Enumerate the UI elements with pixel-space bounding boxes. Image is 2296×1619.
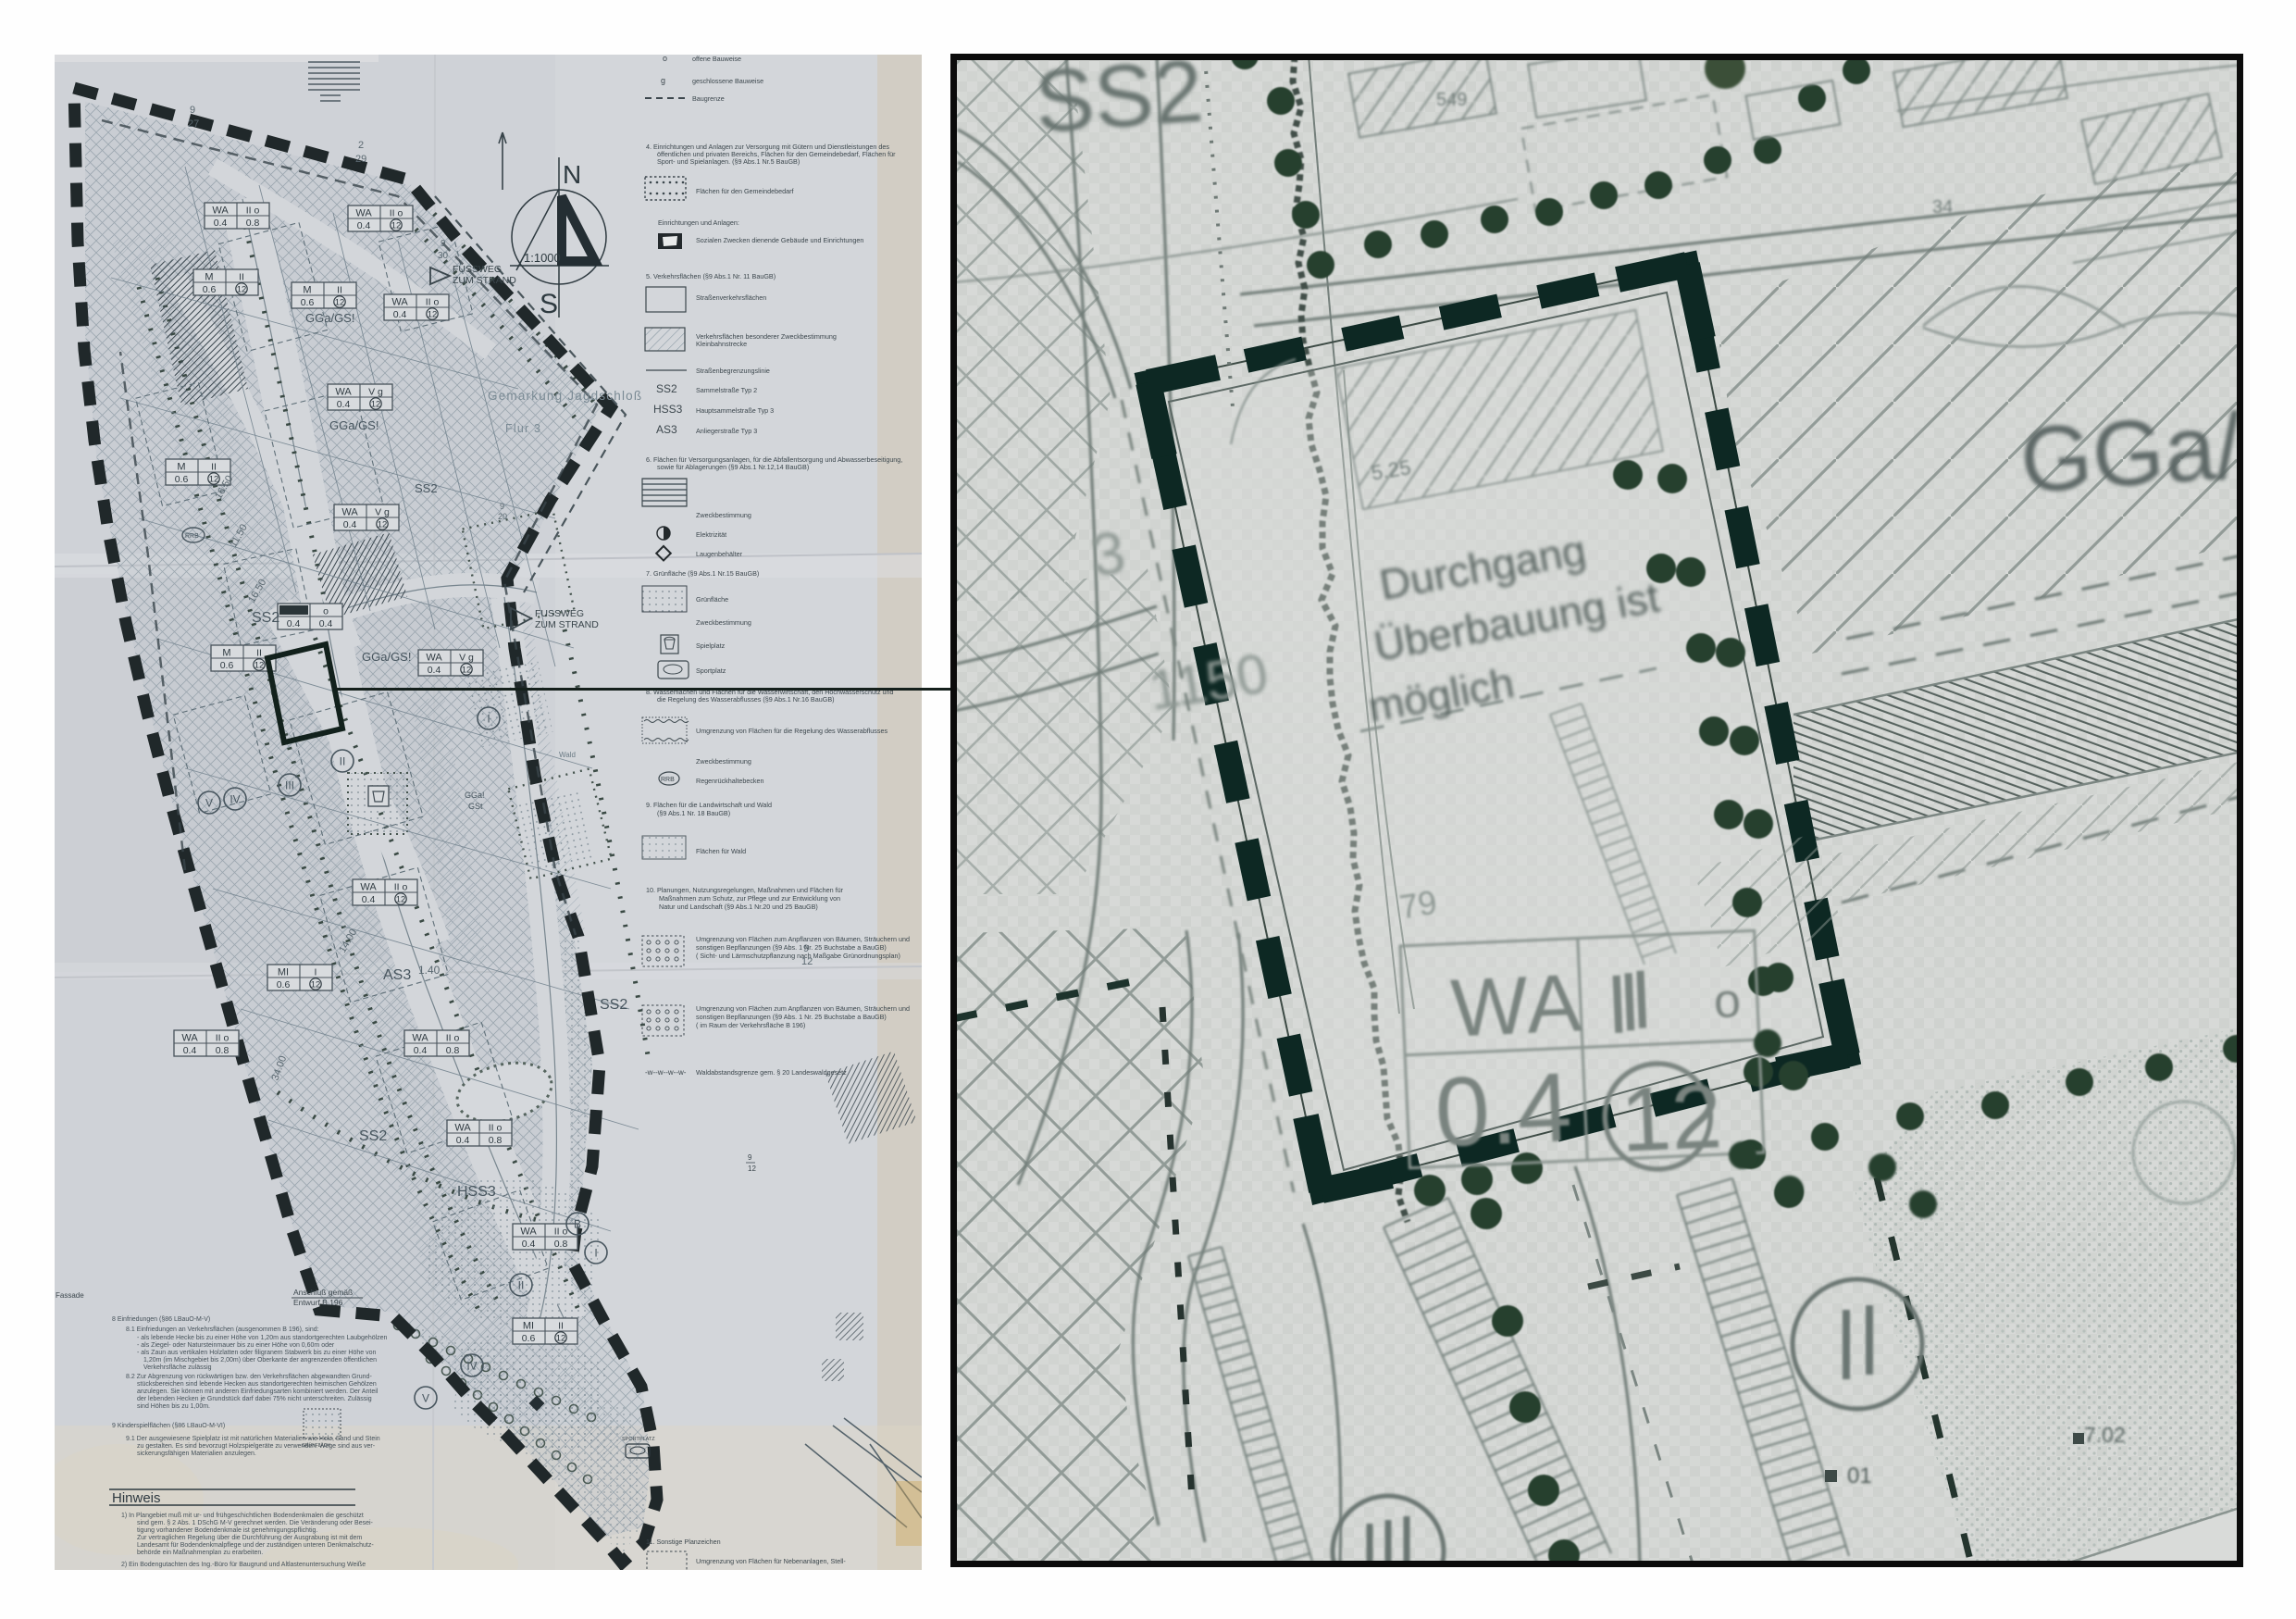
svg-text:Straßenbegrenzungslinie: Straßenbegrenzungslinie: [696, 367, 770, 375]
svg-text:0.6: 0.6: [203, 284, 217, 295]
svg-text:2) Ein Bodengutachten des In: 2) Ein Bodengutachten des Ing.-Büro für …: [121, 1562, 366, 1568]
svg-text:Hinweis: Hinweis: [112, 1490, 161, 1506]
svg-text:WA: WA: [355, 208, 372, 219]
svg-text:Sportplatz: Sportplatz: [696, 666, 726, 675]
svg-text:WA: WA: [520, 1227, 537, 1238]
svg-text:Zur vertraglichen Regelung übe: Zur vertraglichen Regelung über die Durc…: [137, 1535, 362, 1541]
svg-text:Umgrenzung von Flächen zum Anp: Umgrenzung von Flächen zum Anpflanzen vo…: [696, 1004, 910, 1013]
svg-text:8.1 Einfriedungen an Verkehrs: 8.1 Einfriedungen an Verkehrsflächen (au…: [126, 1326, 319, 1333]
svg-text:GSt: GSt: [468, 802, 483, 811]
svg-text:WA: WA: [181, 1033, 198, 1044]
svg-text:WA: WA: [426, 653, 442, 664]
svg-text:12: 12: [311, 980, 321, 990]
svg-text:1) In Plangebiet muß mit ur-: 1) In Plangebiet muß mit ur- und frühges…: [121, 1513, 364, 1519]
svg-text:30: 30: [438, 251, 449, 261]
svg-text:behörde ein Maßnahmenplan zu e: behörde ein Maßnahmenplan zu erarbeiten.: [137, 1550, 263, 1556]
svg-text:Verkehrsfläche zulässig: Verkehrsfläche zulässig: [143, 1364, 212, 1371]
svg-text:Elektrizität: Elektrizität: [696, 530, 726, 539]
svg-text:( im Raum der Verkehrsfläche B: ( im Raum der Verkehrsfläche B 196): [696, 1021, 805, 1029]
svg-text:Flur 3: Flur 3: [505, 422, 541, 435]
svg-text:SS2: SS2: [656, 382, 677, 395]
svg-text:o: o: [1713, 974, 1742, 1028]
svg-text:S: S: [540, 289, 558, 319]
svg-text:WA: WA: [412, 1033, 428, 1044]
svg-text:9: 9: [500, 502, 504, 511]
svg-text:SS2: SS2: [252, 610, 279, 626]
svg-text:Flächen für den Gemeindebedarf: Flächen für den Gemeindebedarf: [696, 187, 793, 195]
svg-text:II o: II o: [216, 1033, 230, 1044]
svg-text:0.8: 0.8: [216, 1045, 230, 1056]
svg-text:M: M: [177, 462, 185, 473]
svg-text:WA: WA: [1449, 956, 1585, 1053]
svg-text:IV: IV: [466, 1360, 477, 1373]
svg-text:I: I: [315, 967, 317, 978]
svg-text:9: 9: [190, 105, 195, 116]
svg-text:III: III: [285, 779, 294, 792]
svg-text:o: o: [663, 55, 667, 63]
svg-text:Zweckbestimmung: Zweckbestimmung: [696, 757, 751, 766]
svg-text:tigung vorhandener Bodendenkma: tigung vorhandener Bodendenkmale ist gen…: [137, 1527, 317, 1534]
svg-text:0.6: 0.6: [522, 1333, 536, 1344]
svg-text:II: II: [211, 462, 217, 473]
svg-text:Landesamt für Bodendenkmalpfle: Landesamt für Bodendenkmalpflege und der…: [137, 1542, 374, 1549]
svg-text:11. Sonstige Planzeichen: 11. Sonstige Planzeichen: [646, 1538, 721, 1546]
svg-text:SS2: SS2: [1032, 54, 1206, 152]
svg-text:SS2: SS2: [600, 997, 627, 1013]
svg-text:WA: WA: [212, 205, 229, 217]
svg-text:Wald: Wald: [559, 751, 576, 759]
svg-text:II: II: [558, 1321, 564, 1332]
svg-text:- als Ziegel- oder Naturstein: - als Ziegel- oder Natursteinmauer bis z…: [137, 1342, 335, 1349]
svg-text:- als lebende Hecke bis zu ei: - als lebende Hecke bis zu einer Höhe vo…: [137, 1335, 388, 1341]
svg-text:Kleinbahnstrecke: Kleinbahnstrecke: [696, 340, 747, 348]
svg-text:II o: II o: [390, 208, 403, 219]
svg-text:II o: II o: [554, 1227, 568, 1238]
svg-text:GGa/G: GGa/G: [2017, 389, 2243, 513]
svg-text:0.4: 0.4: [456, 1135, 470, 1146]
svg-text:B: B: [574, 1218, 581, 1231]
svg-text:stücksbereichen sind lebende H: stücksbereichen sind lebende Hecken aus …: [137, 1381, 377, 1388]
svg-text:5. Verkehrsflächen (§9 Abs.: 5. Verkehrsflächen (§9 Abs.1 Nr. 11 BauG…: [646, 272, 776, 280]
svg-text:0.4: 0.4: [414, 1045, 428, 1056]
svg-text:0.4: 0.4: [319, 618, 333, 629]
svg-text:Gemarkung Jagdschloß: Gemarkung Jagdschloß: [488, 389, 642, 403]
svg-text:I: I: [487, 713, 490, 726]
svg-text:8 Einfriedungen (§86 LBa: 8 Einfriedungen (§86 LBauO-M-V): [112, 1316, 210, 1323]
svg-text:offene Bauweise: offene Bauweise: [692, 55, 741, 63]
svg-text:29: 29: [355, 154, 366, 165]
svg-text:sonstigen Bepflanzungen (§9 Ab: sonstigen Bepflanzungen (§9 Abs. 1 Nr. 2…: [696, 943, 887, 952]
svg-text:0.6: 0.6: [277, 979, 291, 990]
svg-text:0.4: 0.4: [183, 1045, 197, 1056]
svg-text:-w--w--w--w-: -w--w--w--w-: [645, 1068, 687, 1077]
svg-text:Waldabstandsgrenze gem. § 20 L: Waldabstandsgrenze gem. § 20 Landeswaldg…: [696, 1068, 847, 1077]
svg-text:Spielplatz: Spielplatz: [696, 641, 726, 650]
svg-text:AS3: AS3: [656, 423, 677, 436]
svg-text:0.4: 0.4: [522, 1239, 536, 1250]
svg-text:Sozialen Zwecken dienende Gebä: Sozialen Zwecken dienende Gebäude und Ei…: [696, 236, 863, 244]
svg-text:2: 2: [358, 140, 364, 151]
svg-text:WA: WA: [391, 297, 408, 308]
svg-text:12: 12: [556, 1334, 566, 1344]
svg-text:M: M: [222, 648, 230, 659]
svg-text:9. Flächen für die Landwirtsc: 9. Flächen für die Landwirtschaft und Wa…: [646, 801, 772, 809]
svg-text:II o: II o: [394, 882, 408, 893]
svg-text:7.02: 7.02: [2084, 1423, 2126, 1447]
svg-text:SS2: SS2: [359, 1128, 387, 1144]
svg-text:II: II: [340, 755, 346, 768]
svg-text:SPORTPLATZ: SPORTPLATZ: [622, 1437, 655, 1442]
svg-text:I: I: [594, 1247, 597, 1260]
svg-text:1.40: 1.40: [418, 964, 441, 977]
svg-text:12: 12: [335, 298, 345, 308]
svg-text:N: N: [563, 160, 581, 189]
svg-text:0.4: 0.4: [357, 220, 371, 231]
svg-text:II o: II o: [246, 205, 260, 217]
svg-text:9: 9: [748, 1153, 752, 1162]
svg-text:Entwurf B 196: Entwurf B 196: [293, 1298, 343, 1307]
svg-text:12: 12: [748, 1164, 756, 1173]
svg-text:GGa/GS!: GGa/GS!: [362, 650, 411, 664]
svg-text:II: II: [337, 285, 342, 296]
svg-text:0.4: 0.4: [214, 218, 228, 229]
svg-text:12: 12: [371, 400, 381, 410]
svg-text:M: M: [205, 272, 213, 283]
svg-text:Maßnahmen zum Schutz, zur Pfle: Maßnahmen zum Schutz, zur Pflege und zur…: [659, 894, 840, 903]
svg-text:II: II: [256, 648, 262, 659]
svg-text:V g: V g: [459, 653, 474, 664]
svg-text:AS3: AS3: [383, 967, 411, 983]
svg-text:der lebenden Hecken je Grundst: der lebenden Hecken je Grundstück darf d…: [137, 1396, 372, 1402]
svg-text:GGa/GS!: GGa/GS!: [305, 311, 354, 325]
svg-text:sonstigen Bepflanzungen (§9 Ab: sonstigen Bepflanzungen (§9 Abs. 1 Nr. 2…: [696, 1013, 887, 1021]
svg-text:Zweckbestimmung: Zweckbestimmung: [696, 618, 751, 627]
svg-text:sowie für Ablagerungen (§9 Abs: sowie für Ablagerungen (§9 Abs.1 Nr.12,1…: [657, 463, 809, 471]
svg-text:HSS3: HSS3: [457, 1184, 496, 1200]
svg-text:0.4: 0.4: [362, 894, 376, 905]
svg-text:0.4: 0.4: [287, 618, 301, 629]
svg-text:Umgrenzung von Flächen für Neb: Umgrenzung von Flächen für Nebenanlagen,…: [696, 1557, 846, 1565]
svg-text:V g: V g: [368, 387, 383, 398]
svg-text:MI: MI: [278, 967, 289, 978]
svg-text:Fassade: Fassade: [56, 1291, 84, 1300]
svg-text:Straßenverkehrsflächen: Straßenverkehrsflächen: [696, 293, 766, 302]
svg-text:Laugenbehälter: Laugenbehälter: [696, 550, 743, 558]
svg-text:RRB: RRB: [185, 533, 199, 540]
svg-text:WA: WA: [341, 507, 358, 518]
svg-text:12: 12: [462, 666, 472, 676]
svg-text:Anschluß gemäß: Anschluß gemäß: [293, 1288, 353, 1297]
svg-text:SS2: SS2: [415, 481, 438, 495]
svg-text:0.4: 0.4: [1433, 1052, 1573, 1167]
svg-text:Anliegerstraße Typ 3: Anliegerstraße Typ 3: [696, 427, 757, 435]
svg-text:V: V: [422, 1392, 429, 1405]
svg-text:0.6: 0.6: [220, 660, 234, 671]
svg-text:o: o: [323, 606, 329, 617]
svg-text:20: 20: [498, 512, 507, 521]
svg-text:II o: II o: [446, 1033, 460, 1044]
svg-text:0.4: 0.4: [428, 665, 441, 676]
svg-text:Baugrenze: Baugrenze: [692, 94, 725, 103]
svg-text:Umgrenzung von Flächen für die: Umgrenzung von Flächen für die Regelung …: [696, 727, 887, 735]
svg-text:sind gem. § 2 Abs. 1 DSchG M-V: sind gem. § 2 Abs. 1 DSchG M-V gerechnet…: [137, 1520, 374, 1526]
svg-text:WA: WA: [454, 1123, 471, 1134]
svg-text:9: 9: [441, 239, 446, 249]
svg-text:FUSSWEG: FUSSWEG: [453, 264, 502, 275]
svg-text:HSS3: HSS3: [653, 403, 683, 416]
svg-text:12: 12: [237, 285, 247, 295]
svg-text:Hauptsammelstraße Typ 3: Hauptsammelstraße Typ 3: [696, 406, 774, 415]
svg-text:V g: V g: [375, 507, 390, 518]
svg-text:12: 12: [378, 520, 388, 530]
svg-text:0.6: 0.6: [301, 297, 315, 308]
svg-text:0.8: 0.8: [554, 1239, 568, 1250]
svg-text:(§9 Abs.1 Nr. 18 BauGB): (§9 Abs.1 Nr. 18 BauGB): [657, 809, 730, 817]
svg-text:12: 12: [254, 661, 265, 671]
svg-text:79: 79: [1396, 883, 1439, 927]
svg-text:ZUM STRAND: ZUM STRAND: [453, 275, 516, 286]
svg-text:II o: II o: [489, 1123, 503, 1134]
svg-text:0.8: 0.8: [446, 1045, 460, 1056]
svg-text:549: 549: [1436, 90, 1467, 110]
svg-text:WA: WA: [360, 882, 377, 893]
svg-text:GGa/GS!: GGa/GS!: [329, 418, 379, 432]
svg-text:12: 12: [396, 895, 406, 905]
svg-text:9.1 Der ausgewiesene Spielpla: 9.1 Der ausgewiesene Spielplatz ist mit …: [126, 1436, 380, 1442]
svg-text:0.4: 0.4: [337, 399, 351, 410]
svg-text:geschlossene Bauweise: geschlossene Bauweise: [692, 77, 763, 85]
svg-text:12: 12: [209, 475, 219, 485]
svg-text:sind Höhen bis zu 1,00m.: sind Höhen bis zu 1,00m.: [137, 1403, 210, 1410]
svg-text:0.8: 0.8: [246, 218, 260, 229]
svg-text:sickerungsfähigen Materialien: sickerungsfähigen Materialien anzulegen.: [137, 1451, 256, 1457]
svg-text:Zweckbestimmung: Zweckbestimmung: [696, 511, 751, 519]
svg-text:10. Planungen, Nutzungsregelun: 10. Planungen, Nutzungsregelungen, Maßna…: [646, 886, 844, 894]
svg-text:9 Kinderspielflächen (§86: 9 Kinderspielflächen (§86 LBauO-M-VI): [112, 1423, 225, 1429]
svg-text:II: II: [518, 1279, 525, 1292]
svg-text:Einrichtungen und Anlagen:: Einrichtungen und Anlagen:: [658, 218, 739, 227]
svg-text:1,20m (im Mischgebiet bis 2,00: 1,20m (im Mischgebiet bis 2,00m) über Ob…: [143, 1357, 377, 1364]
svg-text:0.4: 0.4: [393, 309, 407, 320]
svg-text:GGa!: GGa!: [465, 791, 485, 800]
svg-text:die Regelung des Wasserabfluss: die Regelung des Wasserabflusses (§9 Abs…: [657, 695, 835, 704]
svg-text:12: 12: [1619, 1065, 1724, 1171]
svg-text:- als Zaun aus vertikalen Hol: - als Zaun aus vertikalen Holzlatten ode…: [137, 1350, 376, 1356]
svg-text:II o: II o: [426, 297, 440, 308]
svg-text:g: g: [661, 76, 665, 85]
svg-text:Flächen für Wald: Flächen für Wald: [696, 847, 746, 855]
svg-text:IV: IV: [230, 793, 240, 806]
svg-text:Regenrückhaltebecken: Regenrückhaltebecken: [696, 777, 764, 785]
svg-text:MI: MI: [523, 1321, 534, 1332]
svg-text:ZUM STRAND: ZUM STRAND: [535, 619, 599, 630]
svg-text:01: 01: [1847, 1463, 1872, 1488]
svg-text:V: V: [205, 797, 213, 810]
svg-text:zu gestalten. Es sind bevorzug: zu gestalten. Es sind bevorzugt Holzspie…: [137, 1443, 376, 1450]
svg-text:34: 34: [1932, 197, 1953, 218]
svg-text:GRÜNFLÄCH: GRÜNFLÄCH: [302, 1442, 331, 1449]
svg-text:Sport- und Spielanlagen. (§9: Sport- und Spielanlagen. (§9 Abs.1 Nr.5 …: [657, 157, 800, 166]
svg-text:7. Grünfläche (§9 Abs.1 Nr.15: 7. Grünfläche (§9 Abs.1 Nr.15 BauGB): [646, 569, 759, 578]
svg-text:II: II: [239, 272, 244, 283]
svg-text:Sammelstraße Typ 2: Sammelstraße Typ 2: [696, 386, 757, 394]
svg-text:0.8: 0.8: [489, 1135, 503, 1146]
svg-text:FUSSWEG: FUSSWEG: [535, 608, 584, 619]
svg-text:Umgrenzung von Flächen zum Anp: Umgrenzung von Flächen zum Anpflanzen vo…: [696, 935, 910, 943]
svg-text:WA: WA: [335, 387, 352, 398]
svg-text:8.2 Zur Abgrenzung von rückwä: 8.2 Zur Abgrenzung von rückwärtigen bzw.…: [126, 1374, 372, 1380]
svg-text:0.6: 0.6: [175, 474, 189, 485]
svg-text:12: 12: [428, 310, 438, 320]
svg-text:1:1000: 1:1000: [524, 251, 561, 265]
svg-text:0.4: 0.4: [343, 519, 357, 530]
svg-text:RRB: RRB: [661, 777, 675, 783]
svg-text:anzulegen. Sie können mit ande: anzulegen. Sie können mit anderen Einfri…: [137, 1389, 379, 1395]
svg-text:Grünfläche: Grünfläche: [696, 595, 728, 604]
svg-text:Natur und Landschaft (§9 Abs: Natur und Landschaft (§9 Abs.1 Nr.20 und…: [659, 903, 818, 911]
svg-text:27: 27: [188, 118, 199, 130]
svg-text:12: 12: [391, 221, 402, 231]
svg-text:( Sicht- und Lärmschutzpflanzu: ( Sicht- und Lärmschutzpflanzung nach Ma…: [696, 952, 900, 960]
svg-text:M: M: [303, 285, 311, 296]
